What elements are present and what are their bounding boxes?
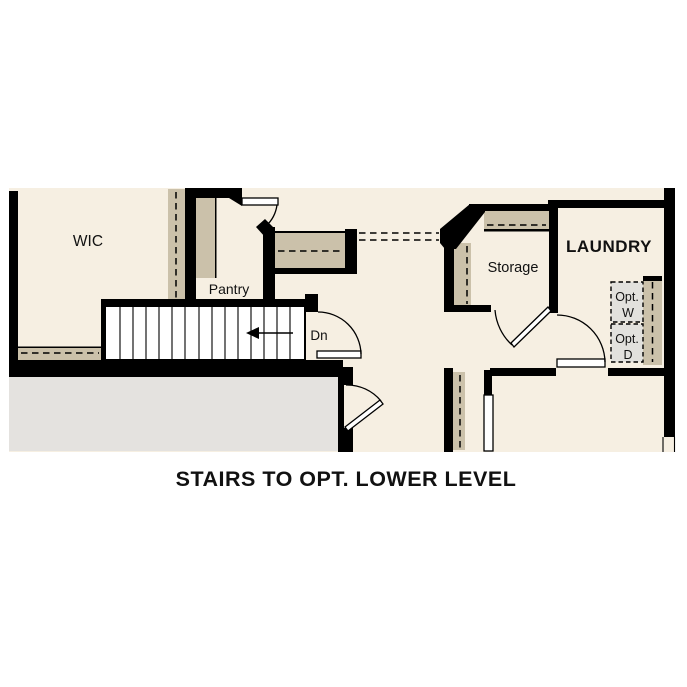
pantry-left-strip (196, 198, 216, 278)
middle-door-top-jamb (338, 367, 353, 385)
pantry-strip-edge-line (215, 198, 217, 278)
floor-plan-page: Opt. W Opt. D WIC Pantry Dn Storage LAUN… (0, 0, 687, 687)
kitchen-counter (275, 231, 349, 268)
bottom-band-wall (9, 360, 343, 377)
storage-left-wall (444, 242, 454, 312)
floor-plan-drawing: Opt. W Opt. D WIC Pantry Dn Storage LAUN… (0, 0, 687, 687)
laundry-left-wall (549, 204, 558, 313)
laundry-label: LAUNDRY (566, 237, 652, 256)
lower-level-area (9, 377, 338, 451)
wic-bottom-strip-line (18, 347, 101, 349)
stairs (105, 306, 305, 360)
storage-top-strip (484, 211, 549, 229)
bottom-wall-right (608, 368, 675, 376)
laundry-top-wall (548, 200, 675, 208)
opt-dryer-label-line2: D (623, 348, 632, 362)
left-outer-wall (9, 191, 18, 377)
laundry-door-leaf (557, 359, 605, 367)
storage-strip-line (484, 229, 549, 232)
storage-label: Storage (488, 260, 539, 276)
plan-caption: STAIRS TO OPT. LOWER LEVEL (176, 467, 517, 491)
bottom-room-left-strip (453, 372, 465, 450)
pantry-label: Pantry (209, 281, 249, 297)
wic-bottom-strip (18, 348, 101, 360)
storage-bottom-wall (444, 305, 491, 312)
pantry-top-wall (195, 188, 242, 198)
counter-bottom-wall (263, 268, 356, 274)
wic-right-wall (185, 188, 196, 306)
bottom-room-door-leaf (484, 395, 493, 451)
stairs-direction-label: Dn (310, 328, 327, 343)
bottom-room-left-wall (444, 368, 453, 452)
bottom-wall-left (490, 368, 556, 376)
opt-washer-label-line1: Opt. (615, 290, 639, 304)
opt-dryer-label-line1: Opt. (615, 332, 639, 346)
counter-end-cap (345, 229, 357, 274)
storage-left-strip (454, 243, 471, 307)
counter-top-line (275, 231, 349, 233)
stairs-top-wall (101, 299, 310, 306)
stair-door-stub (305, 294, 318, 312)
optional-appliances: Opt. W Opt. D (611, 282, 643, 362)
pantry-door-leaf (242, 198, 278, 205)
pantry-right-wall (263, 227, 275, 306)
middle-door-bottom-jamb (338, 428, 353, 452)
storage-top-wall (469, 204, 558, 211)
right-outer-wall (664, 188, 675, 437)
stair-landing-door-leaf (317, 351, 361, 358)
opt-washer-label-line2: W (622, 306, 634, 320)
wic-label: WIC (73, 233, 103, 250)
laundry-strip-cap (643, 276, 662, 281)
